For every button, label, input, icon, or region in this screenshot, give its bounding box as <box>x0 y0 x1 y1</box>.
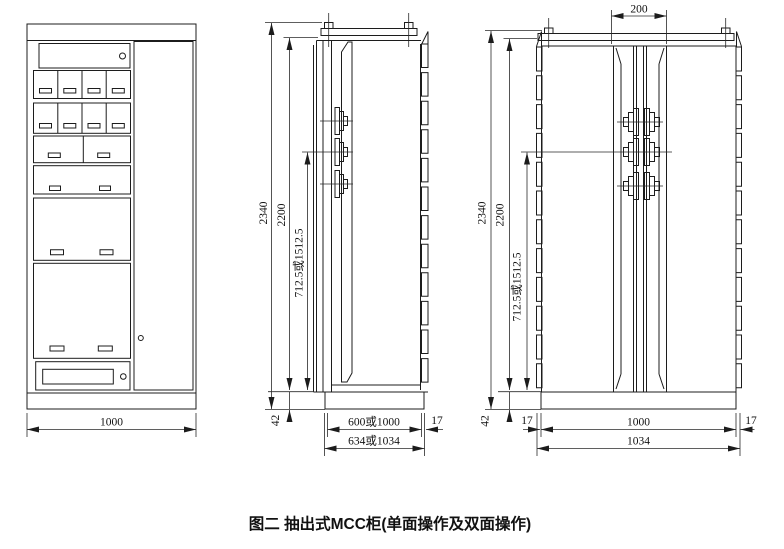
front-width-label: 1000 <box>100 417 123 429</box>
drawer-rail-panel <box>342 42 353 382</box>
dim-double-body-width: 1000 <box>541 413 736 437</box>
dim-side-body-height: 2200 <box>268 38 318 392</box>
dim-double-right-door: 17 <box>741 415 758 430</box>
double-busbar-height-label: 712.5或1512.5 <box>511 252 524 321</box>
right-hinge-strip <box>736 47 742 388</box>
double-view <box>521 18 742 409</box>
double-body-width-label: 1000 <box>627 417 650 429</box>
busbar-column-right <box>644 46 667 392</box>
double-left-door-label: 17 <box>521 415 533 427</box>
side-view <box>302 13 428 409</box>
double-total-width-label: 1034 <box>627 436 650 448</box>
busbar-column-left <box>614 46 637 392</box>
double-base-height-label: 42 <box>480 415 492 427</box>
dim-double-busbar-spacing: 200 <box>612 4 667 45</box>
panel-knob <box>120 53 126 59</box>
side-busbar-height-label: 712.5或1512.5 <box>293 228 306 297</box>
door-knob <box>138 336 143 341</box>
dim-double-body-height: 2200 <box>495 39 542 392</box>
side-total-depth-label: 634或1034 <box>348 435 400 448</box>
dim-side-busbar-height: 712.5或1512.5 <box>293 153 308 391</box>
figure-two-drawing: 1000 2340 2200 712.5或1512.5 42 <box>0 0 784 549</box>
double-body-height-label: 2200 <box>495 203 507 226</box>
dim-side-total-height: 2340 <box>258 23 325 410</box>
figure-caption: 图二 抽出式MCC柜(单面操作及双面操作) <box>249 514 531 533</box>
dim-double-busbar-height: 712.5或1512.5 <box>511 153 528 391</box>
dim-side-body-depth: 600或1000 <box>328 413 422 437</box>
side-body-depth-label: 600或1000 <box>348 416 400 429</box>
rear-hinge-strip <box>422 44 429 382</box>
dim-side-door-thickness: 17 <box>426 415 443 430</box>
side-total-height-label: 2340 <box>258 201 270 224</box>
mcc-cabinet-diagram: 1000 2340 2200 712.5或1512.5 42 <box>0 0 784 549</box>
front-view <box>27 24 196 409</box>
dim-front-width: 1000 <box>27 413 196 437</box>
double-right-door-label: 17 <box>745 415 757 427</box>
double-total-height-label: 2340 <box>477 201 489 224</box>
busbar-spacing-label: 200 <box>630 4 648 16</box>
side-base-height-label: 42 <box>270 415 282 427</box>
side-body-height-label: 2200 <box>276 203 288 226</box>
side-door-thickness-label: 17 <box>431 415 443 427</box>
bottom-unit-knob <box>121 374 127 380</box>
